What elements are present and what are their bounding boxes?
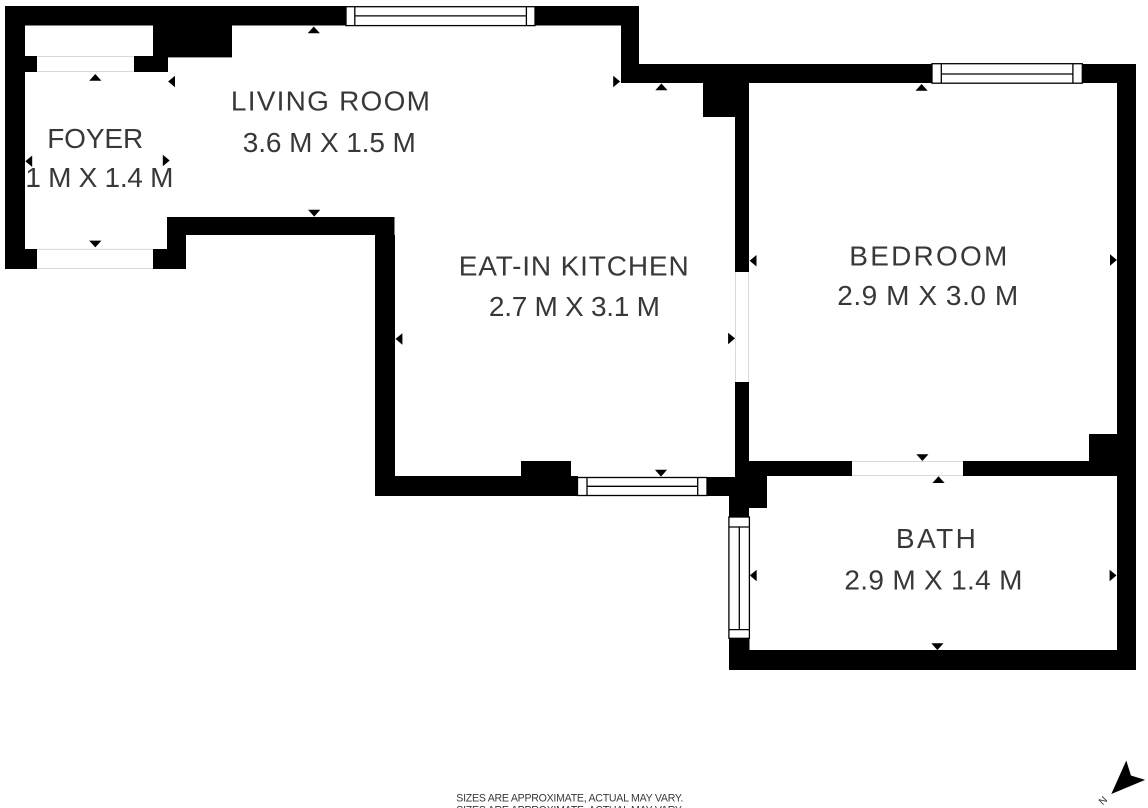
svg-text:2.7 M X 3.1 M: 2.7 M X 3.1 M <box>489 291 660 322</box>
svg-text:2.9 M X 1.4 M: 2.9 M X 1.4 M <box>844 565 1022 596</box>
svg-text:SIZES ARE APPROXIMATE, ACTUAL: SIZES ARE APPROXIMATE, ACTUAL MAY VARY. <box>456 793 683 805</box>
svg-text:BEDROOM: BEDROOM <box>849 240 1007 271</box>
svg-text:1 M X 1.4 M: 1 M X 1.4 M <box>25 162 173 193</box>
svg-text:SIZES ARE APPROXIMATE, ACTUAL: SIZES ARE APPROXIMATE, ACTUAL MAY VARY. <box>456 804 683 808</box>
svg-text:2.9 M X 3.0 M: 2.9 M X 3.0 M <box>837 280 1018 311</box>
svg-text:EAT-IN KITCHEN: EAT-IN KITCHEN <box>459 250 689 281</box>
svg-text:3.6 M X 1.5 M: 3.6 M X 1.5 M <box>243 127 416 158</box>
svg-text:FOYER: FOYER <box>47 123 143 154</box>
svg-text:BATH: BATH <box>896 523 976 554</box>
svg-text:LIVING ROOM: LIVING ROOM <box>231 86 430 117</box>
